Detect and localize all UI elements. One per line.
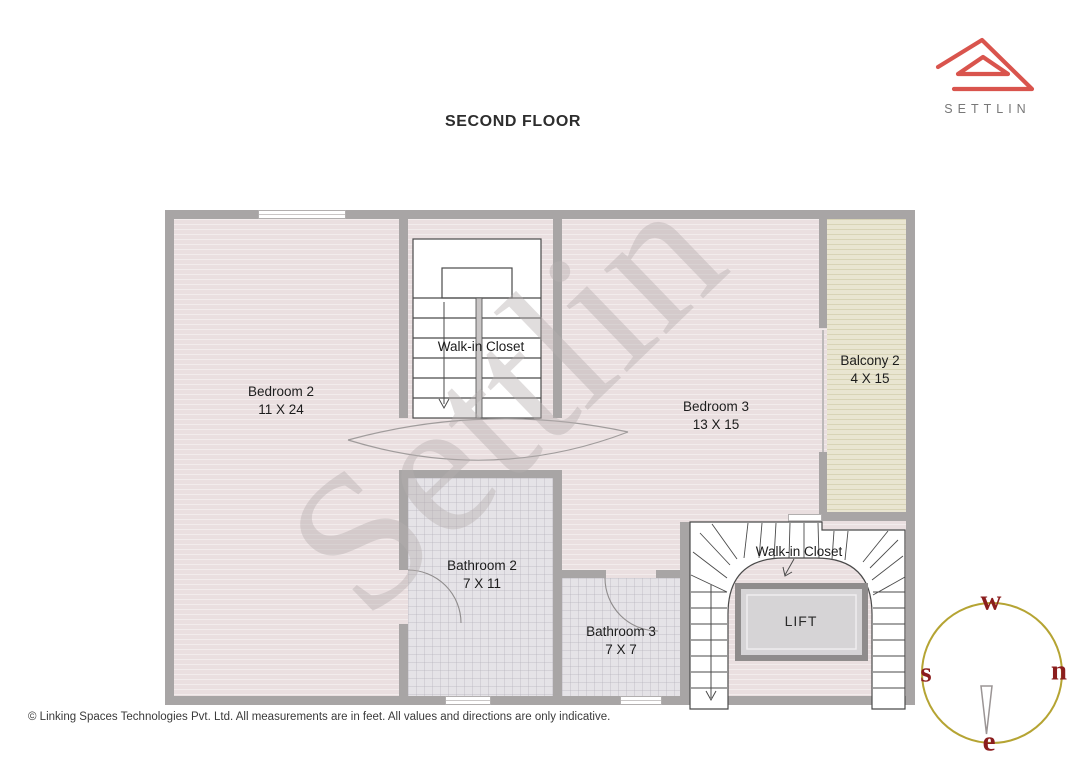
wall-bathrooms-divider [553,470,562,696]
room-label-walkin-closet-top: Walk-in Closet [438,338,525,356]
room-name: Bedroom 2 [248,383,314,401]
wall-outer-left [165,210,174,705]
room-name: Bathroom 3 [586,623,656,641]
room-name: Walk-in Closet [438,338,525,356]
wall-outer-right [906,210,915,705]
room-label-bedroom3: Bedroom 3 13 X 15 [683,398,749,434]
wall-bathroom2-left-upper [399,470,408,570]
page-title: SECOND FLOOR [445,113,581,131]
floorplan-page: SECOND FLOOR SETTLIN [0,0,1080,763]
room-name: LIFT [785,612,818,630]
copyright-text: © Linking Spaces Technologies Pvt. Ltd. … [28,711,610,723]
wall-balcony-bottom [819,512,915,521]
compass-west: w [981,587,1002,616]
wall-closet-right-upper [553,219,562,418]
room-label-balcony2: Balcony 2 4 X 15 [840,352,899,388]
room-label-bathroom2: Bathroom 2 7 X 11 [447,557,517,593]
room-dims: 13 X 15 [683,416,749,434]
room-name: Bathroom 2 [447,557,517,575]
wall-bathroom3-top-left [553,570,606,578]
room-label-bathroom3: Bathroom 3 7 X 7 [586,623,656,659]
wall-stairwell-left [680,522,690,705]
logo-brand-text: SETTLIN [930,102,1040,116]
room-dims: 4 X 15 [840,370,899,388]
window-stairwell [788,514,822,528]
room-name: Walk-in Closet [756,543,843,561]
room-dims: 7 X 7 [586,641,656,659]
wall-bedroom2-right-upper [399,219,408,418]
compass-south: s [920,659,931,688]
wall-outer-bottom [165,696,915,705]
room-name: Bedroom 3 [683,398,749,416]
wall-bathroom2-top [399,470,562,478]
compass-needle-icon [979,684,995,736]
compass-rose: w s n e [921,602,1063,744]
wall-balcony-upper [819,219,827,328]
window-bathroom3-bottom [620,696,662,705]
room-dims: 11 X 24 [248,401,314,419]
wall-bathroom2-left-lower [399,624,408,696]
window-bedroom2-top [258,210,346,219]
wall-balcony-lower [819,452,827,521]
room-label-lift: LIFT [785,612,818,630]
room-name: Balcony 2 [840,352,899,370]
compass-north: n [1051,657,1067,686]
room-label-bedroom2: Bedroom 2 11 X 24 [248,383,314,419]
room-label-walkin-closet-bottom: Walk-in Closet [756,543,843,561]
settlin-roof-icon [930,28,1040,94]
window-bathroom2-bottom [445,696,491,705]
room-dims: 7 X 11 [447,575,517,593]
settlin-logo: SETTLIN [930,28,1040,116]
